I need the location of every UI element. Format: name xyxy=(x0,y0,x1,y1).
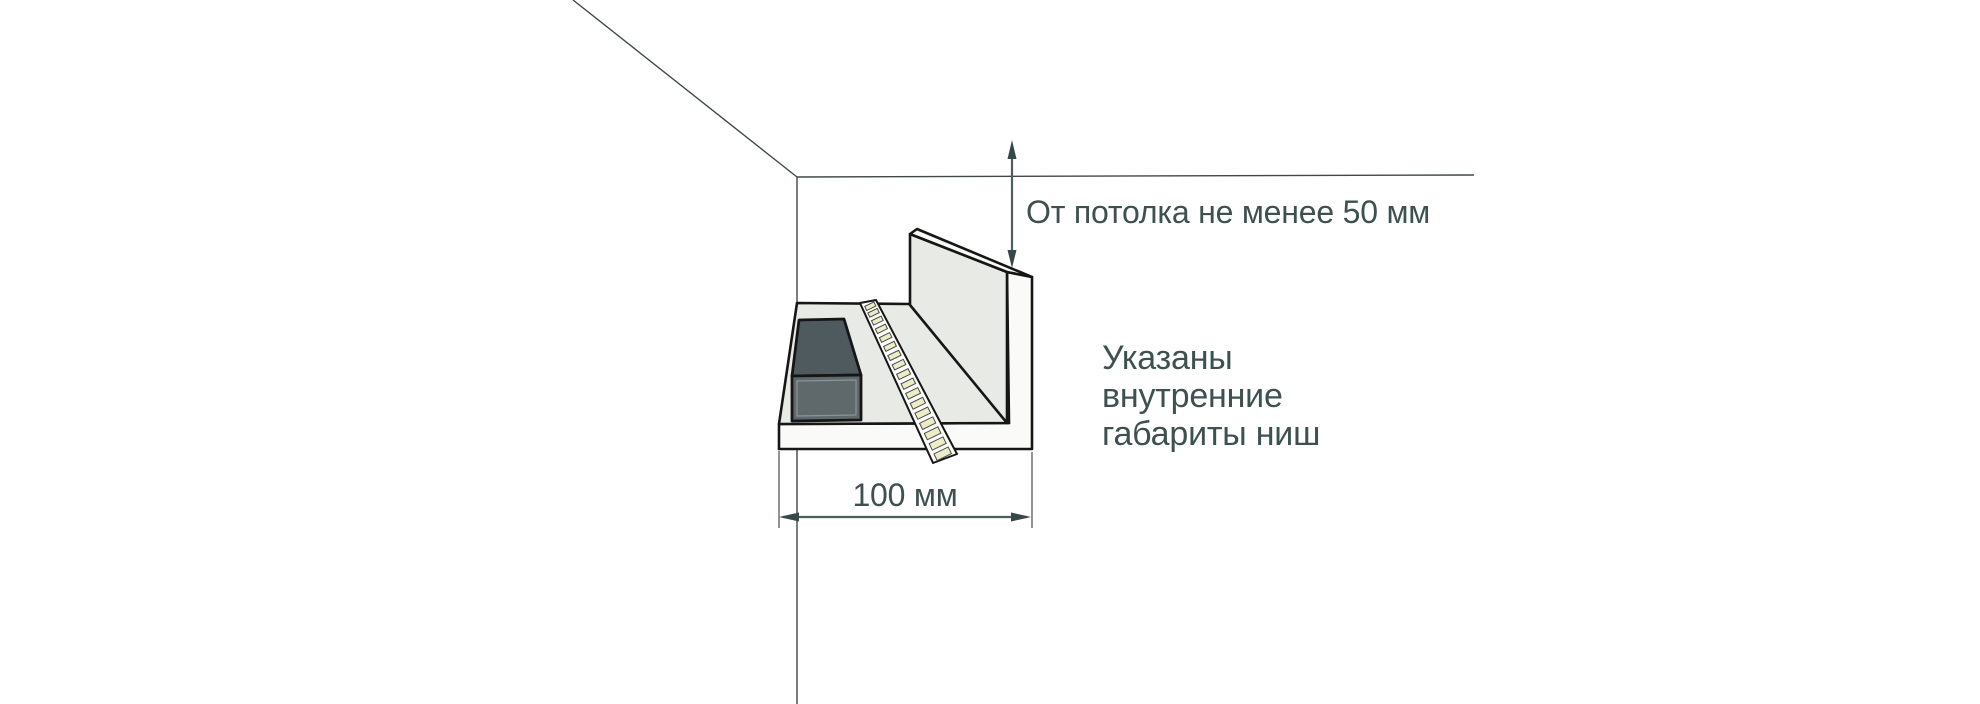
ceiling-gap-dimension xyxy=(1008,140,1017,268)
diagram-canvas: От потолка не менее 50 мм 100 мм Указаны… xyxy=(0,0,1980,704)
ceiling-corner-diagonal-line xyxy=(573,0,797,177)
inner-dimensions-note: Указаны внутренние габариты ниш xyxy=(1102,339,1320,453)
niche-width-label: 100 мм xyxy=(779,477,1031,513)
arrow-down-icon xyxy=(1008,250,1017,268)
ceiling-gap-label: От потолка не менее 50 мм xyxy=(1026,194,1430,230)
power-supply-front-face xyxy=(792,375,861,421)
note-line-1: Указаны xyxy=(1102,339,1320,377)
arrow-up-icon xyxy=(1008,140,1017,159)
arrow-left-icon xyxy=(779,513,799,522)
ceiling-wall-line xyxy=(797,175,1474,177)
note-line-3: габариты ниш xyxy=(1102,415,1320,453)
arrow-right-icon xyxy=(1011,513,1031,522)
note-line-2: внутренние xyxy=(1102,377,1320,415)
niche-diagram-svg xyxy=(0,0,1980,704)
